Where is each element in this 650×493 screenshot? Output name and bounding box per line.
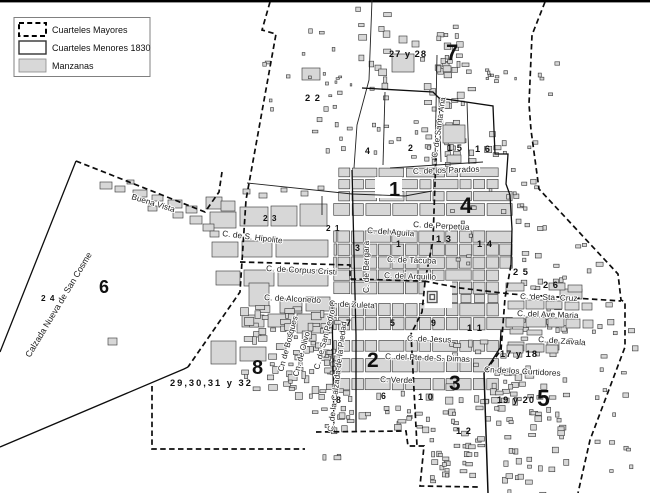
svg-text:1 6: 1 6 [475, 144, 491, 154]
svg-text:19 y 20: 19 y 20 [497, 395, 535, 405]
svg-text:2 5: 2 5 [513, 267, 529, 277]
svg-text:5: 5 [537, 385, 550, 411]
svg-text:C. del Arquillo: C. del Arquillo [384, 271, 437, 282]
svg-text:1 5: 1 5 [447, 143, 463, 153]
svg-text:C. Verde: C. Verde [380, 375, 413, 385]
svg-text:6: 6 [381, 391, 387, 401]
svg-text:7: 7 [346, 318, 352, 328]
svg-text:Cuarteles Menores 1830: Cuarteles Menores 1830 [52, 43, 151, 53]
svg-text:1 0: 1 0 [418, 392, 434, 402]
svg-text:3: 3 [355, 243, 361, 253]
svg-text:1 2: 1 2 [456, 426, 472, 436]
svg-text:C. de Bergara: C. de Bergara [362, 240, 371, 293]
svg-text:2 6: 2 6 [543, 280, 559, 290]
svg-text:1 4: 1 4 [477, 239, 493, 249]
svg-text:4: 4 [365, 146, 371, 156]
svg-text:1: 1 [389, 179, 400, 201]
svg-text:2: 2 [408, 143, 414, 153]
svg-text:2 4: 2 4 [41, 293, 56, 303]
svg-text:Manzanas: Manzanas [52, 61, 94, 71]
svg-text:C. de Tacuba: C. de Tacuba [387, 255, 437, 266]
svg-text:27 y 28: 27 y 28 [389, 49, 427, 59]
svg-text:5: 5 [390, 318, 396, 328]
svg-text:8: 8 [252, 357, 263, 379]
svg-text:1 1: 1 1 [467, 323, 483, 333]
svg-text:2 3: 2 3 [263, 213, 278, 223]
svg-text:7: 7 [446, 40, 458, 65]
svg-text:2 2: 2 2 [305, 93, 321, 103]
svg-text:6: 6 [99, 277, 109, 297]
svg-text:3: 3 [449, 372, 461, 395]
svg-text:29,30,31 y 32: 29,30,31 y 32 [170, 378, 253, 388]
svg-text:C. de Jesus: C. de Jesus [407, 334, 452, 345]
svg-text:8: 8 [336, 395, 342, 405]
svg-text:9: 9 [431, 318, 437, 328]
svg-text:Cuarteles Mayores: Cuarteles Mayores [52, 25, 128, 35]
svg-text:1: 1 [396, 239, 402, 249]
svg-text:1 3: 1 3 [436, 234, 452, 244]
svg-text:17 y 18: 17 y 18 [500, 349, 538, 359]
svg-text:4: 4 [460, 193, 473, 218]
svg-text:2: 2 [367, 349, 379, 372]
svg-text:2 1: 2 1 [326, 223, 341, 233]
